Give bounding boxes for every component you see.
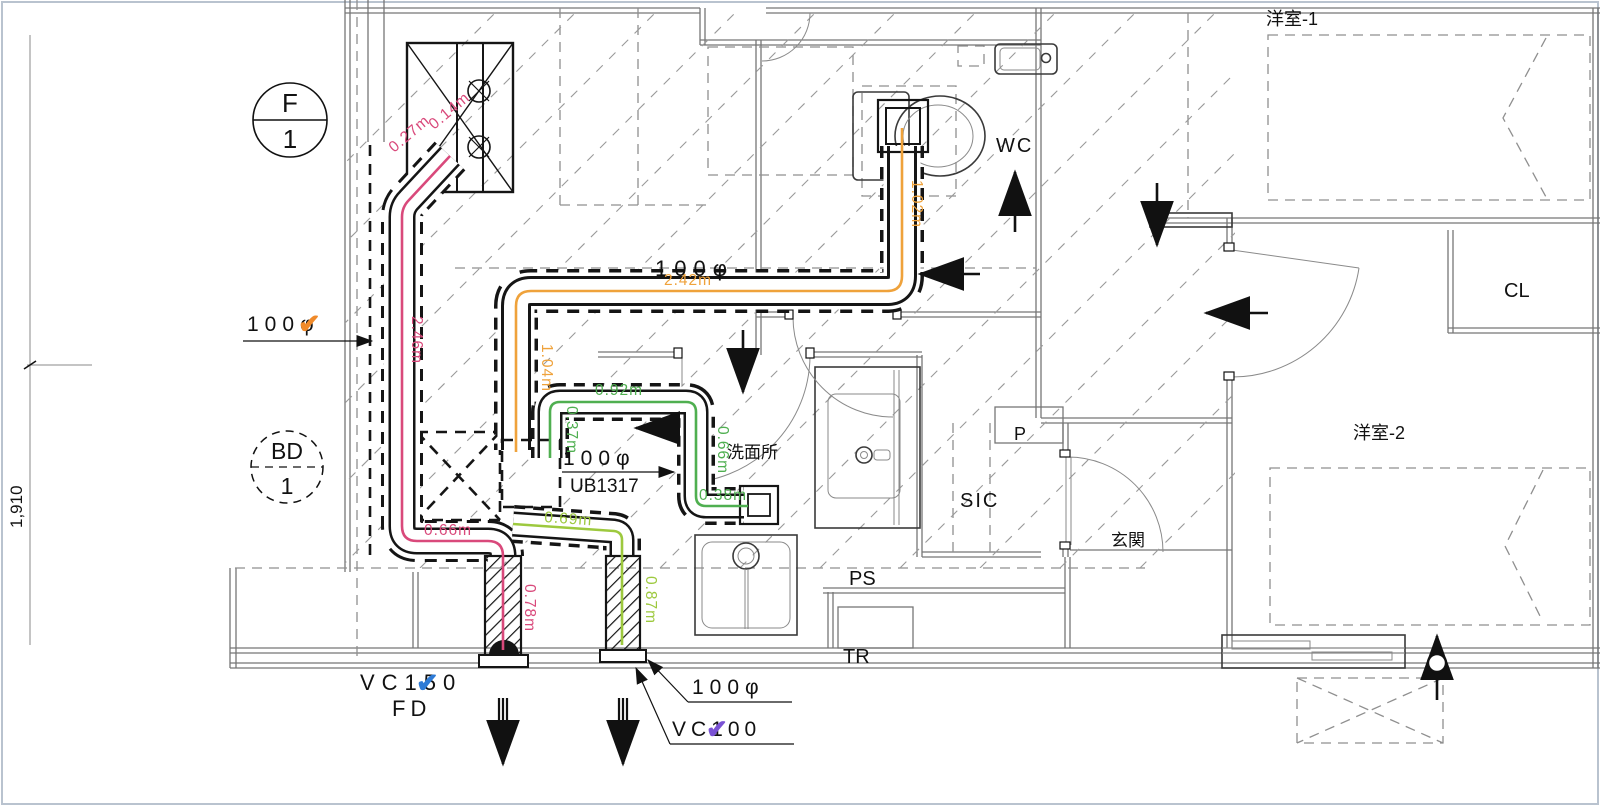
room-cl: CL (1504, 280, 1530, 302)
bd-symbol: BD 1 (251, 431, 323, 503)
meas-green-092: 0.92m (595, 382, 643, 399)
meas-pink-066: 0.66m (424, 522, 472, 539)
meas-green-037: 0.37m (563, 406, 580, 454)
floor-plan-page: F 1 BD 1 1,910 100φ ✔ 100φ 100φ UB1317 V… (0, 0, 1600, 806)
washbasin (815, 367, 920, 528)
room-bedroom1: 洋室-1 (1266, 9, 1318, 29)
check-icon-blue: ✔ (416, 668, 439, 698)
room-sic: SIC (960, 490, 999, 512)
room-bedroom2: 洋室-2 (1353, 423, 1405, 443)
room-ps: PS (849, 568, 876, 590)
wc-hand-sink (958, 44, 1057, 74)
floor-plan-drawing: F 1 BD 1 1,910 100φ ✔ 100φ 100φ UB1317 V… (0, 0, 1600, 806)
meas-pink-078: 0.78m (521, 584, 538, 632)
meas-lime-087: 0.87m (642, 576, 659, 624)
room-entrance: 玄関 (1111, 531, 1145, 550)
check-icon-purple: ✔ (706, 714, 728, 744)
meas-orange-242: 2.42m (664, 272, 712, 289)
room-wc: WC (996, 135, 1033, 157)
bd-symbol-number: 1 (281, 473, 294, 499)
meas-orange-104: 1.04m (538, 344, 555, 392)
fan-symbol-letter: F (282, 88, 298, 118)
exhaust-arrow-right (619, 698, 627, 764)
meas-green-038: 0.38m (699, 487, 747, 504)
meas-green-066: 0.66m (714, 426, 731, 474)
room-p: P (1014, 424, 1026, 444)
meas-lime-069: 0.69m (544, 509, 593, 529)
label-fd: FD (392, 696, 431, 721)
fan-symbol-number: 1 (283, 124, 297, 154)
pipe-box (995, 407, 1063, 443)
meas-pink-246: 2.46m (408, 316, 425, 364)
exhaust-arrow-left (499, 698, 507, 764)
washer-pan (695, 535, 797, 635)
check-icon-orange: ✔ (298, 309, 321, 339)
dimension-1910: 1,910 (7, 485, 26, 528)
label-ub1317: UB1317 (570, 476, 639, 497)
meas-orange-102: 1.02m (908, 180, 925, 228)
label-dia-bottom: 100φ (692, 676, 765, 699)
room-tr: TR (843, 646, 870, 668)
bathtub-box (417, 432, 500, 520)
bd-symbol-letters: BD (271, 438, 303, 464)
fan-symbol-f1: F 1 (253, 83, 327, 157)
label-vc150: VC150 (360, 670, 462, 695)
fixtures (407, 13, 1405, 668)
room-washroom: 洗面所 (727, 443, 778, 462)
symbol-bubbles: F 1 BD 1 (251, 83, 327, 503)
